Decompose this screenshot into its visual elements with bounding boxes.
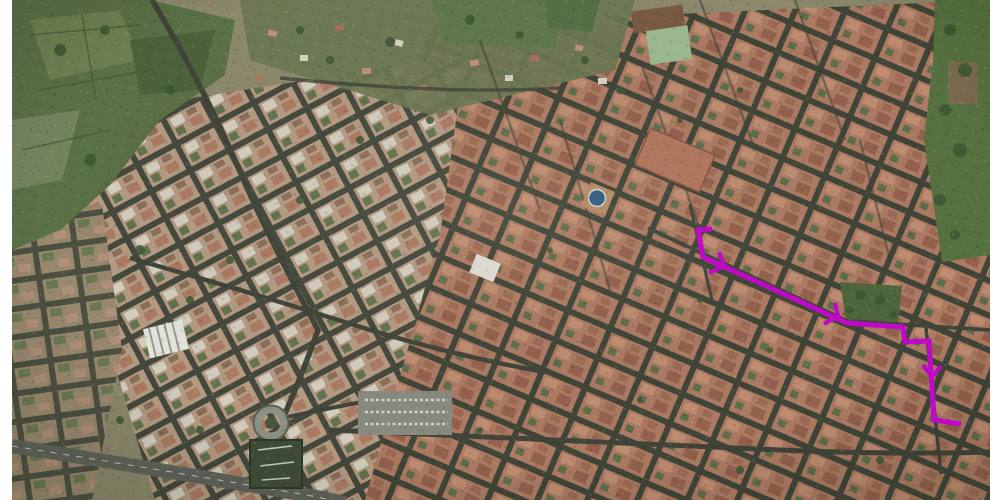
satellite-photo bbox=[12, 0, 990, 500]
screenshot-page bbox=[0, 0, 1000, 500]
satellite-map bbox=[0, 0, 1000, 500]
vignette bbox=[12, 0, 990, 500]
